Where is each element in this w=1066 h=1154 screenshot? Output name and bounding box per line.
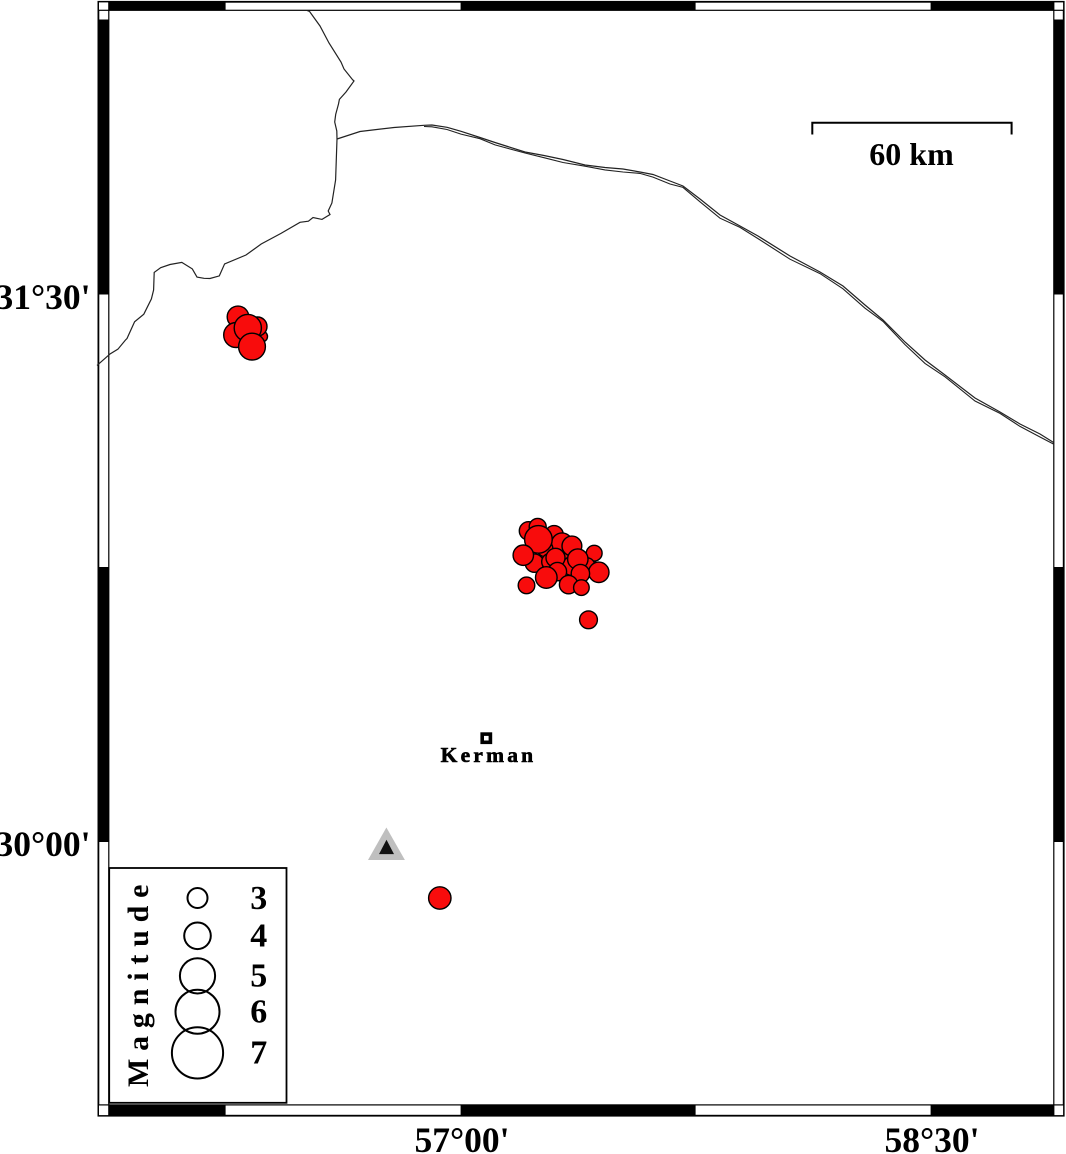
svg-text:57°00': 57°00' [414, 1120, 509, 1154]
svg-text:5: 5 [250, 958, 267, 995]
svg-text:58°30': 58°30' [884, 1120, 979, 1154]
svg-text:31°30': 31°30' [0, 277, 91, 317]
svg-text:3: 3 [250, 880, 267, 917]
svg-text:7: 7 [250, 1035, 267, 1072]
svg-text:6: 6 [250, 994, 267, 1031]
svg-text:Magnitude: Magnitude [122, 877, 155, 1087]
svg-text:30°00': 30°00' [0, 824, 91, 864]
svg-text:60 km: 60 km [869, 136, 954, 172]
svg-text:Kerman: Kerman [441, 743, 537, 767]
svg-text:4: 4 [250, 918, 267, 955]
